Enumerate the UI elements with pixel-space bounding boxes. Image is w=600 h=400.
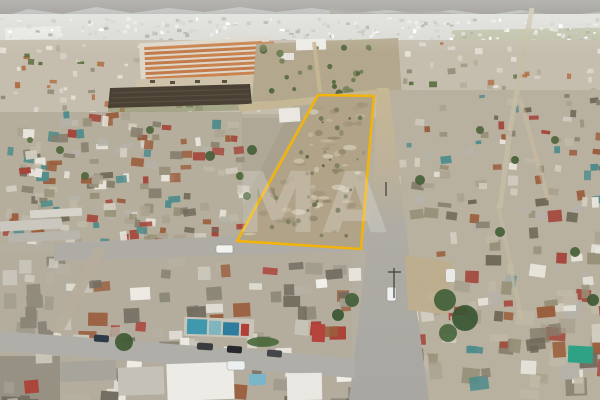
building [292,87,296,91]
building [529,375,541,389]
building [228,122,239,129]
building [489,334,508,341]
building [139,221,152,226]
building [410,209,425,220]
building [59,88,63,93]
building [45,273,54,283]
building [86,214,98,223]
building [20,395,30,400]
aerial-photo-canvas: MA [0,0,600,400]
building [335,125,340,130]
haze-overlay [0,0,600,52]
building [509,163,517,170]
building [595,232,600,244]
building [149,188,162,198]
building [170,173,181,182]
building [182,151,192,158]
building [563,117,572,122]
building [13,91,18,94]
building [565,138,574,147]
building [249,283,262,290]
building [466,147,474,155]
building [529,227,539,239]
building [324,326,338,337]
building [24,379,39,393]
building [494,115,499,120]
shopfront-teal [184,317,255,338]
building [493,164,502,170]
building [102,116,109,127]
building [574,137,580,142]
building [324,151,326,153]
building [450,232,457,244]
building [184,193,191,200]
building [574,377,585,394]
building [356,121,362,126]
parked-car-3 [227,346,242,354]
building [343,86,351,94]
building [334,107,339,112]
building [212,120,221,130]
building [26,294,43,308]
building [220,216,230,222]
building [428,361,443,380]
plowed-field [108,84,252,114]
building [144,149,152,157]
building [440,171,450,179]
building [439,105,446,112]
building [92,94,95,100]
building [430,62,433,68]
building [555,264,562,270]
building [121,112,131,121]
building [547,210,562,223]
building [225,135,230,142]
shopfront-green [568,345,594,363]
building [476,221,490,228]
building [170,151,183,159]
building [537,69,542,75]
building [206,304,223,313]
building [162,125,172,131]
building [162,215,171,224]
building [595,132,600,140]
building [327,137,341,140]
building [535,211,548,221]
building [313,106,326,110]
building [309,144,313,146]
building [584,171,591,181]
building [173,207,181,216]
building [34,168,42,178]
building [548,323,561,336]
building [117,75,122,79]
building [51,135,58,142]
building [120,147,127,157]
building [294,285,312,295]
building [283,296,300,307]
building [50,80,57,84]
building [496,68,503,73]
building [513,74,517,78]
building [487,85,493,89]
building [399,159,406,167]
building [580,119,585,127]
building [469,375,490,391]
building [325,269,343,280]
building [269,88,275,94]
building [407,69,412,73]
building [88,313,108,327]
building [92,175,103,184]
building [206,286,222,300]
building [152,327,163,338]
building [510,188,517,195]
building [481,368,491,378]
building [322,121,324,123]
building [198,266,211,280]
building [159,292,170,302]
building [294,319,311,336]
building [133,58,140,63]
building [570,110,576,118]
building [64,171,70,179]
building [454,281,471,293]
building [356,71,360,75]
building [116,175,127,183]
building [591,324,600,334]
building [106,180,115,188]
building [63,87,67,90]
building [63,111,69,118]
building [124,308,140,323]
white-car-yard [227,361,245,370]
building [135,322,146,332]
building [503,312,513,321]
building [488,281,496,293]
building [28,59,35,65]
building [451,54,456,57]
building [83,118,92,126]
building [486,255,502,266]
building [141,206,151,216]
building [73,71,77,77]
building [440,156,452,165]
building [7,147,14,156]
building [88,90,95,93]
big-white-roof [166,362,234,400]
building [60,97,68,103]
building [98,138,108,146]
building [24,54,30,58]
building [4,293,17,309]
parked-car-1 [94,335,109,343]
building [289,262,304,270]
building [298,306,307,320]
building [130,127,143,138]
building [447,68,455,75]
building [520,360,536,374]
building [409,82,414,86]
building [44,104,50,108]
building [284,75,289,80]
building [420,92,425,95]
building [436,251,445,257]
building [90,193,100,199]
building [403,78,408,84]
building [104,203,116,210]
building [498,121,504,129]
building [233,303,251,318]
white-suv [446,269,455,282]
building [415,195,424,204]
building [596,100,600,105]
building [508,176,518,186]
building [131,157,145,167]
building [71,95,76,99]
parked-car-2 [197,342,213,350]
building [461,63,468,67]
building [129,214,137,220]
building [348,117,351,120]
building [4,382,14,394]
building [590,164,598,171]
building [60,53,66,60]
building [44,189,55,198]
building [204,167,215,172]
building [556,253,567,264]
building [81,142,89,152]
building [19,260,31,274]
building [476,140,482,144]
building [515,310,535,327]
building [321,148,330,151]
building [583,276,594,286]
building [566,101,572,106]
building [567,73,571,79]
building [554,165,561,172]
building [195,137,201,146]
building [263,267,278,275]
building [25,307,36,319]
building [580,66,588,72]
building [343,145,356,150]
building [479,183,487,189]
building [500,139,506,144]
building [446,211,458,221]
building [3,270,18,285]
building [58,134,68,143]
building [62,105,67,111]
building [564,94,569,98]
building [592,342,600,354]
building [72,120,78,127]
building [90,159,99,164]
building [161,269,171,279]
building [326,119,333,122]
building [215,130,225,137]
building [22,66,26,71]
building [159,167,170,175]
building [458,55,463,61]
building [494,311,504,322]
building [120,231,128,242]
building [474,60,478,66]
building [104,210,116,217]
building [212,228,218,233]
building [524,158,535,163]
building [47,89,54,94]
building [534,76,540,79]
building [529,115,539,120]
building [144,140,154,150]
building [319,116,324,121]
building [440,132,448,137]
building [67,129,77,138]
building [509,338,522,353]
parked-car-4 [267,349,283,357]
building [320,139,333,142]
building [415,119,424,126]
building [17,67,21,71]
building [343,121,353,127]
building [230,135,237,142]
building [558,59,566,65]
building [332,84,337,89]
building [501,281,512,295]
building [595,247,600,254]
building [1,96,6,99]
building [38,62,42,65]
building [457,193,465,202]
building [356,102,368,108]
building [45,296,54,310]
shopfront-red [312,324,326,342]
building [140,183,149,190]
building [46,161,58,172]
building [566,212,578,223]
building [124,64,128,67]
building [530,345,539,353]
building [488,293,500,305]
building [25,150,38,160]
building [588,77,592,83]
white-van [216,245,233,253]
pool [249,374,266,385]
building [592,197,599,208]
building [569,150,577,156]
building [15,82,20,88]
building [152,121,161,127]
building [93,222,99,228]
building [559,319,575,334]
building [89,280,102,289]
building [533,246,541,254]
building [23,129,35,138]
building [424,207,439,218]
building [326,144,336,146]
building [77,59,82,62]
building [97,61,104,66]
building [406,143,411,148]
building [587,253,600,265]
watermark: MA [235,154,392,252]
building [42,77,46,83]
building [271,291,282,302]
building [77,102,83,105]
building [315,130,323,136]
building [284,284,295,296]
building [305,262,323,275]
building [47,85,51,88]
building [307,65,312,70]
building [414,158,420,167]
building [552,341,566,358]
building [339,130,344,136]
building [152,134,159,140]
building [500,341,508,348]
building [100,391,119,400]
building [24,275,34,283]
building [563,293,579,306]
building [424,126,430,132]
building [26,284,40,296]
building [221,264,231,277]
building [511,57,517,62]
building [460,83,467,88]
building [218,170,225,176]
building [130,287,151,301]
building [279,58,285,64]
building [465,271,479,284]
building [548,188,559,196]
building [298,71,302,75]
building [504,300,513,306]
building [529,264,547,278]
building [581,197,587,207]
building [200,203,209,211]
building [147,161,156,169]
building [426,151,432,159]
building [6,209,13,219]
building [358,115,363,120]
aerial-photo: MA [0,0,600,400]
building [203,219,211,224]
building [193,152,205,160]
building [554,146,560,153]
building [211,142,220,148]
building [9,100,16,105]
building [77,221,88,227]
building [327,64,332,69]
building [181,165,192,170]
building [308,132,313,137]
building [181,139,187,145]
building [316,279,328,289]
building [168,196,180,203]
building [168,258,186,268]
building [136,227,147,235]
building [351,78,356,83]
building [91,68,95,72]
building [429,81,437,87]
building [76,129,84,139]
building [349,268,362,281]
building [572,205,582,213]
building [332,80,336,84]
building [537,306,556,319]
white-car-road [387,287,396,301]
